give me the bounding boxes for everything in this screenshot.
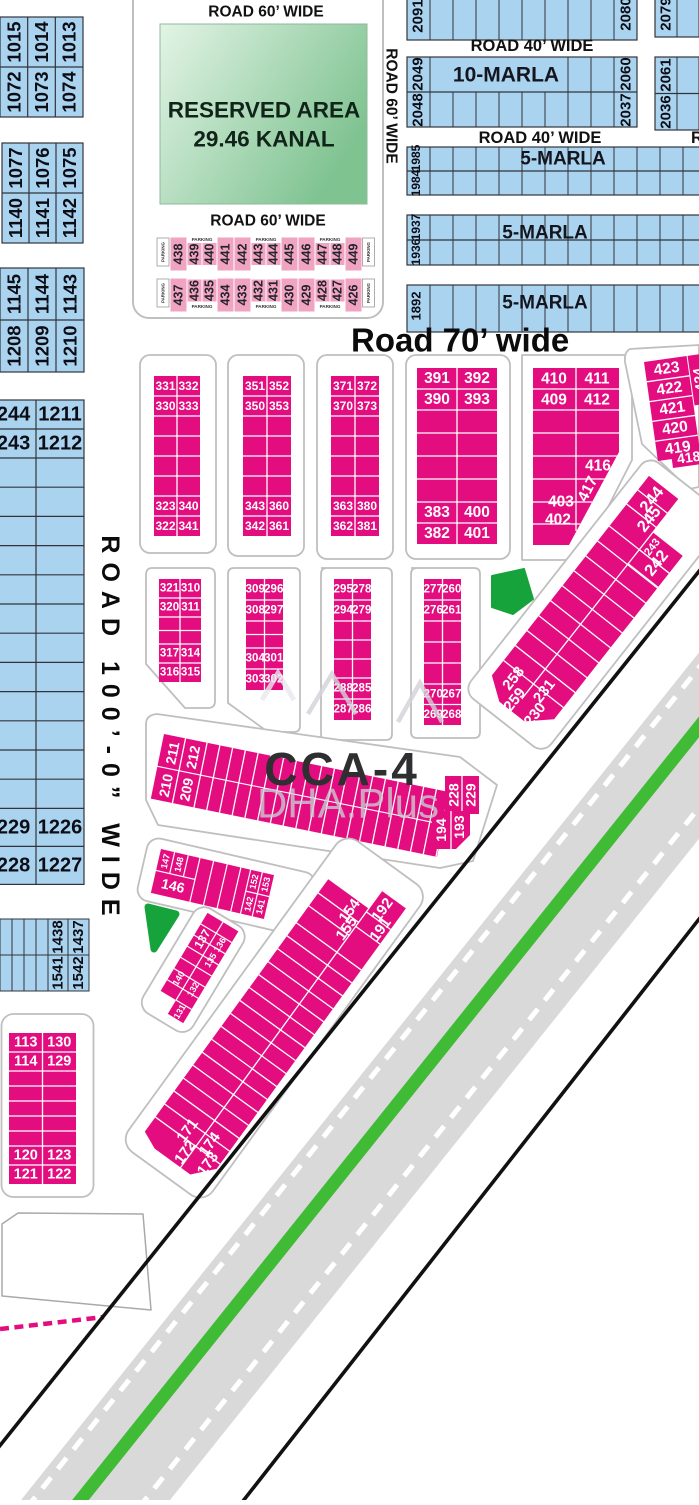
svg-text:409: 409 (541, 392, 567, 409)
svg-text:393: 393 (464, 391, 490, 408)
svg-text:315: 315 (181, 667, 201, 679)
svg-text:5-MARLA: 5-MARLA (520, 149, 606, 170)
svg-text:411: 411 (584, 371, 609, 388)
svg-text:441: 441 (219, 244, 233, 265)
svg-text:2061: 2061 (658, 58, 675, 91)
svg-text:363: 363 (333, 499, 353, 513)
svg-text:1076: 1076 (32, 147, 53, 188)
svg-text:1013: 1013 (59, 21, 80, 62)
svg-text:10-MARLA: 10-MARLA (453, 64, 559, 87)
svg-text:341: 341 (178, 519, 198, 533)
svg-text:1243: 1243 (0, 433, 30, 455)
svg-text:423: 423 (653, 359, 681, 379)
svg-text:340: 340 (178, 499, 198, 513)
svg-text:ROAD 40’ WIDE: ROAD 40’ WIDE (471, 37, 594, 55)
svg-text:123: 123 (47, 1148, 71, 1164)
svg-text:447: 447 (316, 244, 330, 265)
svg-text:1936: 1936 (409, 238, 423, 265)
svg-text:400: 400 (464, 504, 490, 521)
svg-text:431: 431 (267, 280, 281, 301)
svg-text:1437: 1437 (70, 920, 87, 953)
svg-text:330: 330 (155, 399, 175, 413)
svg-text:314: 314 (181, 648, 201, 660)
svg-text:439: 439 (188, 244, 202, 265)
svg-text:322: 322 (155, 519, 175, 533)
svg-text:437: 437 (172, 285, 186, 306)
svg-text:Road 70’ wide: Road 70’ wide (351, 322, 569, 359)
svg-text:412: 412 (584, 392, 610, 409)
svg-text:129: 129 (47, 1054, 71, 1070)
svg-text:PARKING: PARKING (192, 304, 213, 309)
svg-text:122: 122 (47, 1167, 71, 1183)
svg-text:285: 285 (352, 683, 372, 695)
svg-text:PARKING: PARKING (320, 237, 341, 242)
svg-text:448: 448 (331, 244, 345, 265)
svg-text:430: 430 (283, 285, 297, 306)
svg-text:1541: 1541 (50, 956, 67, 989)
svg-text:267: 267 (442, 688, 461, 700)
svg-text:380: 380 (357, 499, 377, 513)
svg-text:1226: 1226 (38, 816, 83, 838)
svg-text:R: R (691, 129, 699, 147)
svg-text:114: 114 (14, 1054, 37, 1070)
svg-text:279: 279 (352, 605, 371, 617)
svg-text:429: 429 (300, 285, 314, 306)
svg-text:321: 321 (160, 583, 180, 595)
svg-text:308: 308 (246, 605, 266, 617)
svg-text:1542: 1542 (70, 956, 87, 989)
svg-text:295: 295 (334, 584, 354, 596)
svg-text:392: 392 (464, 370, 490, 387)
svg-text:297: 297 (264, 605, 283, 617)
svg-text:426: 426 (347, 285, 361, 306)
svg-text:373: 373 (357, 399, 377, 413)
svg-text:1014: 1014 (31, 21, 52, 63)
svg-text:360: 360 (269, 499, 289, 513)
svg-text:268: 268 (442, 709, 462, 721)
svg-text:444: 444 (267, 244, 281, 265)
svg-text:1227: 1227 (38, 854, 83, 876)
svg-text:PARKING: PARKING (366, 282, 371, 303)
svg-text:260: 260 (442, 584, 461, 596)
svg-text:428: 428 (316, 280, 330, 301)
svg-text:370: 370 (333, 399, 353, 413)
svg-text:228: 228 (446, 783, 462, 807)
svg-text:390: 390 (424, 391, 450, 408)
svg-text:2079: 2079 (658, 0, 675, 31)
svg-text:1438: 1438 (50, 920, 67, 953)
svg-text:229: 229 (463, 783, 479, 807)
svg-text:2080: 2080 (618, 0, 635, 31)
svg-text:418: 418 (676, 448, 699, 467)
svg-text:433: 433 (236, 285, 250, 306)
svg-text:421: 421 (658, 398, 686, 418)
svg-text:383: 383 (424, 504, 450, 521)
svg-text:1244: 1244 (0, 404, 31, 426)
svg-text:432: 432 (252, 280, 266, 301)
svg-text:1229: 1229 (0, 816, 30, 838)
svg-text:2091: 2091 (410, 0, 427, 33)
svg-text:301: 301 (264, 653, 284, 665)
svg-text:276: 276 (424, 605, 443, 617)
svg-text:1210: 1210 (60, 325, 81, 366)
svg-text:1072: 1072 (3, 71, 24, 112)
svg-text:1145: 1145 (4, 274, 25, 314)
svg-text:350: 350 (245, 399, 265, 413)
svg-text:391: 391 (424, 370, 450, 387)
svg-text:130: 130 (47, 1035, 71, 1051)
svg-text:ROAD 40’ WIDE: ROAD 40’ WIDE (479, 129, 602, 147)
svg-text:440: 440 (203, 244, 217, 265)
svg-text:1141: 1141 (32, 198, 53, 238)
svg-text:1143: 1143 (60, 274, 81, 314)
svg-text:402: 402 (545, 512, 571, 529)
svg-text:ROAD 100’-0” WIDE: ROAD 100’-0” WIDE (96, 535, 124, 924)
svg-text:PARKING: PARKING (256, 237, 277, 242)
svg-text:422: 422 (655, 378, 683, 398)
svg-text:1211: 1211 (38, 404, 81, 426)
svg-text:416: 416 (585, 458, 611, 475)
svg-text:316: 316 (160, 667, 179, 679)
svg-text:343: 343 (245, 499, 265, 513)
svg-text:382: 382 (424, 525, 450, 542)
svg-text:2037: 2037 (618, 93, 635, 126)
svg-text:121: 121 (14, 1167, 38, 1183)
svg-text:403: 403 (548, 494, 574, 511)
svg-text:320: 320 (160, 602, 179, 614)
svg-text:1074: 1074 (59, 71, 80, 113)
svg-text:1015: 1015 (3, 21, 24, 62)
svg-text:1228: 1228 (0, 854, 30, 876)
svg-text:443: 443 (252, 244, 266, 265)
svg-text:1144: 1144 (32, 273, 53, 314)
svg-text:342: 342 (245, 519, 265, 533)
svg-text:ROAD 60’ WIDE: ROAD 60’ WIDE (383, 48, 400, 163)
svg-text:353: 353 (269, 399, 289, 413)
svg-text:361: 361 (269, 519, 289, 533)
svg-text:427: 427 (331, 280, 345, 301)
svg-text:278: 278 (352, 584, 372, 596)
svg-text:PARKING: PARKING (366, 241, 371, 262)
svg-text:261: 261 (442, 605, 462, 617)
svg-text:113: 113 (14, 1035, 37, 1051)
svg-text:1892: 1892 (409, 292, 424, 321)
svg-text:1077: 1077 (5, 147, 26, 188)
svg-text:351: 351 (245, 379, 265, 393)
svg-text:ROAD 60’ WIDE: ROAD 60’ WIDE (210, 213, 325, 230)
svg-text:446: 446 (300, 244, 314, 265)
svg-text:352: 352 (269, 379, 289, 393)
svg-text:434: 434 (219, 285, 233, 306)
svg-text:401: 401 (464, 525, 490, 542)
svg-text:1142: 1142 (59, 198, 80, 238)
svg-text:420: 420 (661, 418, 689, 438)
svg-text:RESERVED AREA: RESERVED AREA (168, 98, 361, 123)
svg-text:323: 323 (155, 499, 175, 513)
svg-text:ROAD 60’ WIDE: ROAD 60’ WIDE (208, 4, 323, 21)
svg-text:1212: 1212 (38, 433, 83, 455)
svg-text:362: 362 (333, 519, 353, 533)
svg-text:5-MARLA: 5-MARLA (502, 223, 588, 244)
svg-text:2060: 2060 (618, 57, 635, 90)
svg-text:PARKING: PARKING (256, 304, 277, 309)
svg-text:331: 331 (155, 379, 175, 393)
svg-text:332: 332 (178, 379, 198, 393)
svg-text:294: 294 (334, 605, 354, 617)
svg-text:381: 381 (357, 519, 377, 533)
svg-text:372: 372 (357, 379, 377, 393)
svg-text:410: 410 (541, 371, 567, 388)
svg-text:2049: 2049 (410, 57, 427, 90)
svg-text:1937: 1937 (409, 213, 423, 240)
svg-text:29.46 KANAL: 29.46 KANAL (193, 127, 335, 152)
svg-text:438: 438 (172, 244, 186, 265)
svg-text:304: 304 (246, 653, 266, 665)
svg-text:2048: 2048 (410, 93, 427, 126)
svg-text:310: 310 (181, 583, 200, 595)
svg-text:333: 333 (178, 399, 198, 413)
svg-text:1140: 1140 (5, 198, 26, 238)
svg-text:311: 311 (181, 602, 200, 614)
svg-text:PARKING: PARKING (320, 304, 341, 309)
svg-text:296: 296 (264, 584, 283, 596)
svg-text:DHA.Plus: DHA.Plus (257, 780, 439, 827)
svg-text:309: 309 (246, 584, 265, 596)
svg-text:120: 120 (14, 1148, 38, 1164)
svg-text:436: 436 (188, 280, 202, 301)
svg-text:1075: 1075 (59, 147, 80, 188)
svg-text:1209: 1209 (32, 325, 53, 366)
svg-text:5-MARLA: 5-MARLA (502, 293, 588, 314)
svg-text:PARKING: PARKING (192, 237, 213, 242)
svg-text:PARKING: PARKING (161, 282, 166, 303)
svg-text:PARKING: PARKING (161, 241, 166, 262)
svg-text:1073: 1073 (31, 71, 52, 112)
svg-text:1985: 1985 (409, 144, 423, 171)
svg-text:303: 303 (246, 674, 265, 686)
svg-text:371: 371 (333, 379, 353, 393)
svg-text:2036: 2036 (658, 95, 675, 128)
svg-text:445: 445 (283, 244, 297, 265)
svg-text:442: 442 (236, 244, 250, 265)
svg-text:449: 449 (347, 244, 361, 265)
svg-text:1984: 1984 (409, 169, 423, 196)
svg-text:435: 435 (203, 280, 217, 301)
svg-text:193: 193 (451, 815, 467, 839)
svg-text:317: 317 (160, 648, 179, 660)
svg-text:277: 277 (424, 584, 443, 596)
svg-text:1208: 1208 (4, 325, 25, 366)
